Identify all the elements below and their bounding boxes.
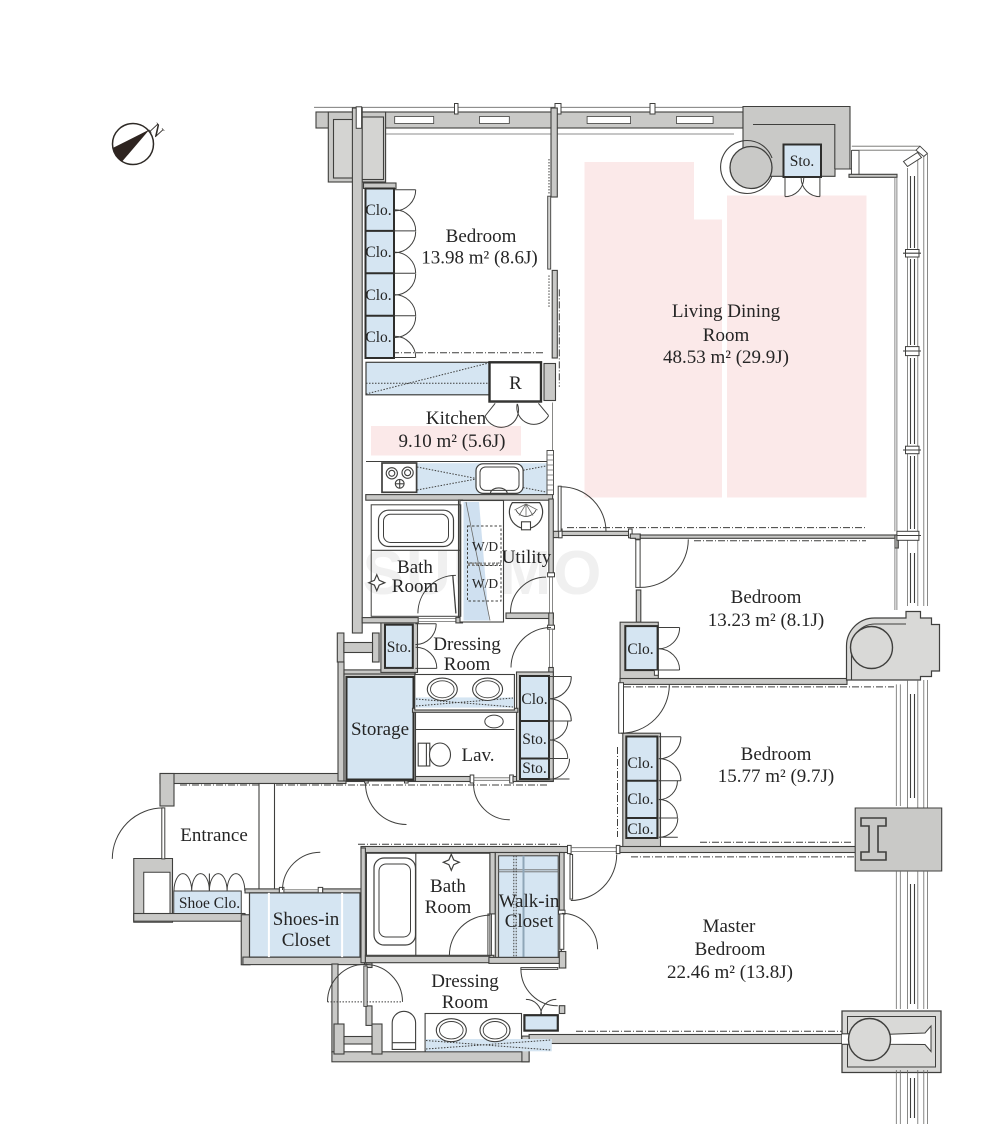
svg-text:Clo.: Clo. [521,691,547,708]
svg-text:Shoes-in: Shoes-in [273,909,340,930]
svg-text:Lav.: Lav. [461,745,494,766]
svg-text:Clo.: Clo. [365,244,391,261]
svg-text:Dressing: Dressing [433,634,501,655]
svg-text:Dressing: Dressing [431,971,499,992]
svg-text:13.23 m² (8.1J): 13.23 m² (8.1J) [708,610,825,631]
svg-text:15.77 m² (9.7J): 15.77 m² (9.7J) [718,766,835,787]
svg-text:48.53 m² (29.9J): 48.53 m² (29.9J) [663,347,789,368]
svg-text:Sto.: Sto. [790,153,815,170]
svg-text:Closet: Closet [282,930,331,951]
svg-text:Sto.: Sto. [387,639,412,656]
svg-text:Closet: Closet [505,911,554,932]
svg-text:Utility: Utility [502,547,552,568]
svg-text:Kitchen: Kitchen [426,408,487,429]
svg-text:Clo.: Clo. [627,755,653,772]
svg-text:Shoe Clo.: Shoe Clo. [179,895,240,912]
svg-text:Living Dining: Living Dining [672,301,781,322]
svg-text:13.98 m² (8.6J): 13.98 m² (8.6J) [421,248,538,269]
svg-text:Bath: Bath [430,876,466,897]
svg-text:Bedroom: Bedroom [446,226,517,247]
svg-text:22.46 m² (13.8J): 22.46 m² (13.8J) [667,962,793,983]
svg-text:Walk-in: Walk-in [499,891,560,912]
svg-text:Sto.: Sto. [522,760,547,777]
svg-text:Clo.: Clo. [627,791,653,808]
svg-text:Room: Room [703,325,750,346]
svg-text:Sto.: Sto. [522,731,547,748]
svg-text:W/D: W/D [472,539,498,554]
svg-text:Clo.: Clo. [627,641,653,658]
svg-text:Room: Room [392,576,439,597]
svg-text:R: R [509,373,522,394]
svg-text:Bedroom: Bedroom [695,939,766,960]
svg-text:Room: Room [425,897,472,918]
svg-text:Master: Master [703,916,756,937]
svg-text:Room: Room [444,654,491,675]
svg-text:Storage: Storage [351,719,409,740]
svg-text:Room: Room [442,992,489,1013]
svg-text:W/D: W/D [472,576,498,591]
svg-text:Clo.: Clo. [365,287,391,304]
svg-text:Clo.: Clo. [365,202,391,219]
svg-text:Clo.: Clo. [365,329,391,346]
svg-text:Bedroom: Bedroom [731,587,802,608]
svg-text:Bedroom: Bedroom [741,744,812,765]
svg-text:Bath: Bath [397,557,433,578]
svg-text:Entrance: Entrance [180,825,248,846]
svg-text:Clo.: Clo. [627,821,653,838]
svg-text:9.10 m² (5.6J): 9.10 m² (5.6J) [398,431,505,452]
